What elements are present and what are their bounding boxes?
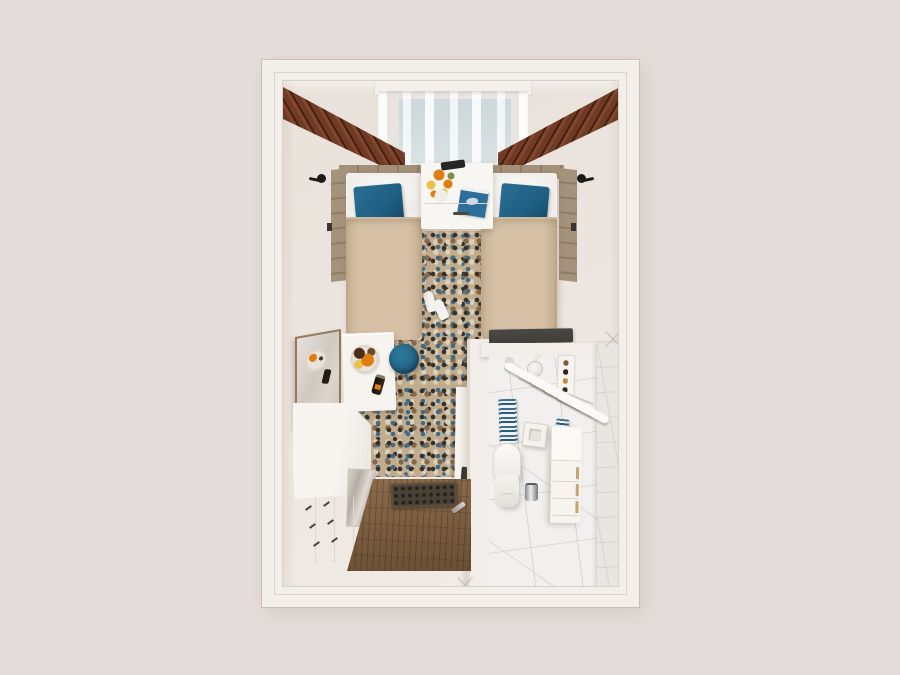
wall-switch-right (571, 223, 576, 231)
nightstand-drawer (425, 203, 489, 226)
nightstand (421, 163, 493, 229)
closet-handle (309, 523, 316, 529)
waste-bin (525, 483, 538, 501)
room-interior (282, 80, 619, 587)
toilet-base (495, 475, 519, 507)
duvet-left (346, 217, 422, 340)
drawer-handle (453, 212, 469, 215)
wall-switch-left (327, 223, 332, 231)
bathroom-vanity-drawers (552, 465, 579, 519)
vanity-drawer (553, 482, 579, 499)
doormat (391, 482, 458, 508)
closet-doors (297, 497, 355, 563)
striped-towel-a (498, 399, 518, 444)
bed-left (346, 173, 422, 340)
floorplan-render (0, 0, 900, 675)
vanity-drawer (552, 499, 578, 516)
wall-face-left (283, 81, 296, 587)
closet-handle (331, 537, 338, 543)
toilet-lid (493, 443, 521, 479)
construction-mark-icon (605, 331, 619, 347)
bottle (371, 374, 386, 396)
bathroom-vanity-top (551, 427, 582, 462)
vanity-drawer (553, 465, 579, 482)
luggage-bench (489, 328, 573, 343)
flower-bouquet (423, 165, 459, 205)
teal-stool (389, 344, 419, 374)
fruit-plate (350, 345, 379, 374)
breakfast-tray (342, 332, 397, 412)
closet-handle (313, 541, 320, 547)
sink-basin (522, 422, 549, 449)
closet-handle (305, 505, 312, 511)
closet-handle (323, 501, 330, 507)
room-outline (262, 60, 639, 607)
closet-handle (327, 519, 334, 525)
sconce-right-icon (577, 174, 586, 183)
sconce-left-icon (317, 174, 326, 183)
bathroom-vanity (550, 427, 582, 524)
duvet-right (481, 217, 557, 340)
toilet (493, 443, 523, 507)
marble-wall (597, 343, 619, 587)
construction-mark-icon (457, 577, 473, 587)
mirror-reflection-bottle (321, 369, 331, 384)
